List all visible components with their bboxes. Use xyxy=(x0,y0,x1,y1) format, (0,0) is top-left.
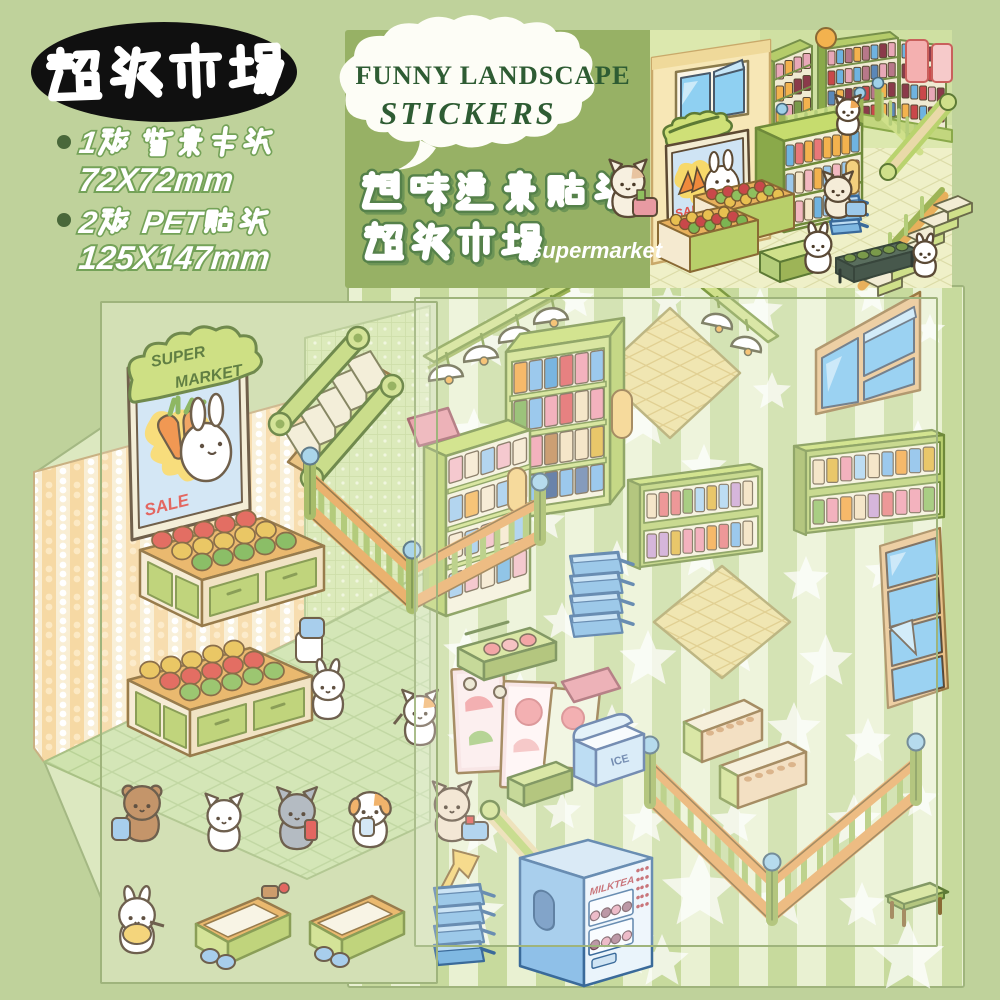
svg-text:supermarket: supermarket xyxy=(530,238,664,263)
svg-text:125X147mm: 125X147mm xyxy=(77,240,272,277)
svg-text:PET: PET xyxy=(140,205,208,240)
svg-text:72X72mm: 72X72mm xyxy=(77,162,235,199)
svg-text:STICKERS: STICKERS xyxy=(380,95,557,131)
svg-text:FUNNY LANDSCAPE: FUNNY LANDSCAPE xyxy=(355,60,630,90)
